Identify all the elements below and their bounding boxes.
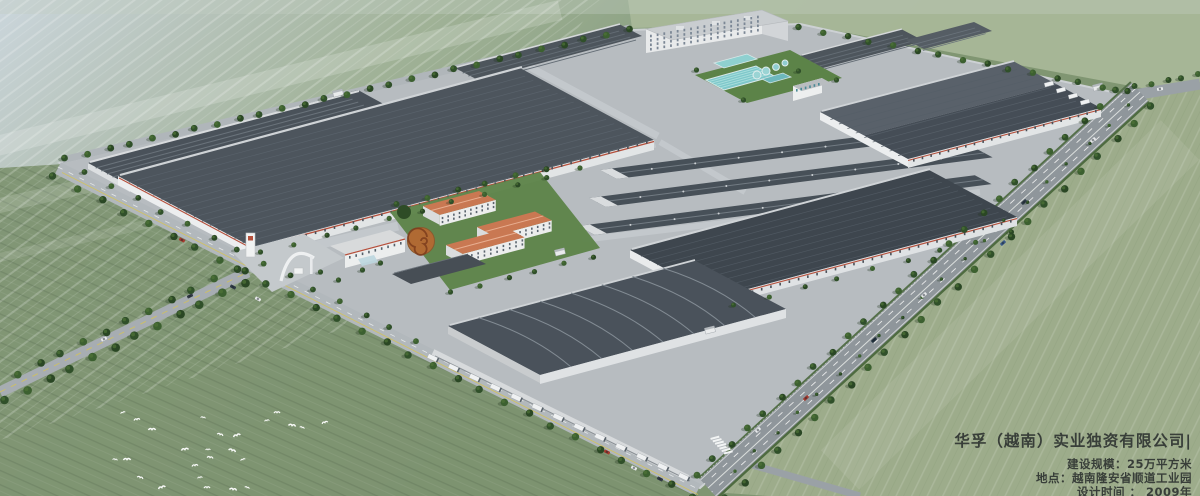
tree-highlight <box>508 276 510 278</box>
roof-vent <box>682 190 684 192</box>
tree-highlight <box>768 295 770 297</box>
tree-highlight <box>1113 87 1116 90</box>
dormitory-window <box>710 24 712 27</box>
tree-highlight <box>796 411 798 413</box>
tree-highlight <box>321 96 324 99</box>
dormitory-window <box>744 18 746 21</box>
tree-highlight <box>1127 104 1129 106</box>
tree-highlight <box>581 36 584 39</box>
tree-highlight <box>50 173 53 176</box>
tree-highlight <box>368 86 371 89</box>
dormitory-window <box>724 30 726 33</box>
tree-highlight <box>150 136 153 139</box>
wall-window <box>1069 117 1071 120</box>
bird <box>123 458 130 460</box>
dormitory-window <box>663 46 665 49</box>
wall-window <box>992 225 994 228</box>
dormitory-window <box>697 35 699 38</box>
tree-highlight <box>891 43 894 46</box>
tree-highlight <box>732 303 734 305</box>
tree-highlight <box>881 302 884 305</box>
tree-highlight <box>497 56 500 59</box>
tree-highlight <box>982 210 985 213</box>
tree-highlight <box>85 152 88 155</box>
large-tree <box>397 205 411 219</box>
tree-highlight <box>15 372 18 375</box>
tree-highlight <box>759 463 762 466</box>
roof-vent <box>824 146 826 148</box>
wall-window <box>913 159 915 162</box>
wall-window <box>372 216 374 219</box>
wall-window <box>1060 119 1062 122</box>
tree-highlight <box>544 167 547 170</box>
wall-window <box>899 250 901 253</box>
wall-window <box>964 233 966 236</box>
wall-window <box>375 249 377 252</box>
dormitory-window <box>717 32 719 35</box>
tree-highlight <box>830 350 833 353</box>
tree-highlight <box>1078 169 1081 172</box>
dormitory-window <box>717 23 719 26</box>
tree-highlight <box>961 58 964 61</box>
tree-highlight <box>797 69 799 71</box>
tree-highlight <box>259 250 261 252</box>
tree-highlight <box>1100 85 1103 88</box>
dormitory-window <box>710 33 712 36</box>
wall-window <box>814 84 816 87</box>
tree-highlight <box>379 261 381 263</box>
dormitory-window <box>657 47 659 50</box>
dormitory-window <box>744 27 746 30</box>
roof-vent <box>694 162 696 164</box>
tree-highlight <box>796 430 799 433</box>
tree-highlight <box>146 221 149 224</box>
tree-highlight <box>974 240 976 242</box>
tree-highlight <box>1062 186 1065 189</box>
tree-highlight <box>803 285 805 287</box>
dormitory-window <box>737 28 739 31</box>
dormitory-window <box>750 30 752 33</box>
tree-highlight <box>263 281 266 284</box>
tree-highlight <box>215 122 218 125</box>
wall-window <box>334 226 336 229</box>
tree-highlight <box>344 92 347 95</box>
wall-window <box>324 229 326 232</box>
design-time-line: 设计时间 ： 2009年 <box>954 486 1192 496</box>
dormitory-window <box>724 35 726 38</box>
wall-window <box>939 152 941 155</box>
wall-window <box>1086 112 1088 115</box>
location-line: 地点：越南隆安省顺道工业园 <box>954 472 1192 486</box>
wall-window <box>400 242 402 245</box>
tree-highlight <box>985 61 988 64</box>
dormitory-window <box>663 37 665 40</box>
dormitory-window <box>730 29 732 32</box>
wall-window <box>1000 136 1002 139</box>
dormitory-window <box>724 26 726 29</box>
dormitory-window <box>737 24 739 27</box>
tree-highlight <box>592 255 594 257</box>
tree-highlight <box>483 192 485 194</box>
tree-highlight <box>338 299 341 302</box>
wall-window <box>796 89 798 92</box>
tree-highlight <box>513 173 516 176</box>
tree-highlight <box>430 363 433 366</box>
wall-window <box>853 263 855 266</box>
wall-window <box>381 247 383 250</box>
tree-highlight <box>146 309 149 312</box>
tree-highlight <box>449 200 451 202</box>
tree-highlight <box>48 375 52 379</box>
dormitory-window <box>697 31 699 34</box>
wall-window <box>800 88 802 91</box>
tree-highlight <box>365 313 368 316</box>
wall-window <box>770 285 772 288</box>
wall-window <box>955 235 957 238</box>
dormitory-window <box>717 27 719 30</box>
tree-highlight <box>988 251 991 254</box>
wall-window <box>982 228 984 231</box>
tree-highlight <box>109 184 112 187</box>
tree-highlight <box>516 52 519 55</box>
dormitory-window <box>683 42 685 45</box>
dormitory-window <box>663 41 665 44</box>
tree-highlight <box>192 244 195 247</box>
tree-highlight <box>121 210 124 213</box>
roof-vent <box>811 174 813 176</box>
dormitory-window <box>730 34 732 37</box>
tree-highlight <box>548 423 551 426</box>
tree-highlight <box>82 170 85 173</box>
tree-highlight <box>936 52 939 55</box>
wall-window <box>945 238 947 241</box>
tree-highlight <box>1046 181 1048 183</box>
dormitory-window <box>690 36 692 39</box>
tree-highlight <box>1010 230 1012 232</box>
tree-highlight <box>173 132 176 135</box>
tree-highlight <box>482 181 485 184</box>
tree-highlight <box>1179 76 1182 79</box>
wall-window <box>890 253 892 256</box>
tree-highlight <box>644 471 647 474</box>
wall-window <box>355 254 357 257</box>
wall-window <box>779 283 781 286</box>
tree-highlight <box>280 106 283 109</box>
tree-highlight <box>80 339 83 342</box>
tree-highlight <box>1148 103 1151 106</box>
tree-highlight <box>502 400 505 403</box>
dormitory-window <box>670 44 672 47</box>
tree-highlight <box>562 43 565 46</box>
dormitory-window <box>670 36 672 39</box>
dormitory-window <box>750 21 752 24</box>
tree-highlight <box>112 344 116 348</box>
tree-highlight <box>242 280 246 284</box>
tree-highlight <box>334 315 337 318</box>
tree-highlight <box>1006 67 1009 70</box>
dormitory-window <box>750 26 752 29</box>
dormitory-window <box>724 22 726 25</box>
tree-highlight <box>409 76 412 79</box>
wall-window <box>1026 129 1028 132</box>
dormitory-window <box>704 25 706 28</box>
wall-window <box>872 258 874 261</box>
wall-window <box>991 138 993 141</box>
dormitory-window <box>650 48 652 51</box>
roof-vent <box>674 218 676 220</box>
company-title: 华孚（越南）实业独资有限公司| <box>954 429 1192 451</box>
tree-highlight <box>57 351 60 354</box>
tree-highlight <box>871 267 873 269</box>
tree-highlight <box>1094 153 1097 156</box>
tree-highlight <box>545 176 547 178</box>
dormitory-window <box>757 25 759 28</box>
tree-highlight <box>861 319 864 322</box>
dormitory-window <box>657 42 659 45</box>
wall-window <box>936 240 938 243</box>
tree-highlight <box>425 196 428 199</box>
tree-highlight <box>256 112 259 115</box>
tree-highlight <box>878 334 880 336</box>
tree-highlight <box>911 272 914 275</box>
roof-vent <box>897 163 899 165</box>
tree-highlight <box>811 364 814 367</box>
tree-highlight <box>695 68 697 70</box>
tree-highlight <box>935 299 938 302</box>
tree-highlight <box>1131 121 1134 124</box>
roof-vent <box>651 168 653 170</box>
tree-highlight <box>1041 201 1044 204</box>
tree-highlight <box>777 432 779 434</box>
wall-window <box>922 157 924 160</box>
tree-highlight <box>946 241 949 244</box>
construction-scale-line: 建设规模：25万平方米 <box>954 458 1192 472</box>
tree-highlight <box>907 259 909 261</box>
tree-highlight <box>730 442 733 445</box>
tree-highlight <box>627 26 630 29</box>
tree-highlight <box>319 270 321 272</box>
tree-highlight <box>359 328 362 331</box>
wall-window <box>835 268 837 271</box>
tree-highlight <box>474 62 477 65</box>
tree-highlight <box>1002 219 1004 221</box>
tree-highlight <box>1089 142 1091 144</box>
dormitory-window <box>697 26 699 29</box>
tree-highlight <box>1047 149 1050 152</box>
tree-highlight <box>1030 70 1033 73</box>
tree-highlight <box>154 323 158 327</box>
roof-vent <box>738 157 740 159</box>
tree-highlight <box>865 365 868 368</box>
tree-highlight <box>1055 76 1058 79</box>
tree-highlight <box>171 234 174 237</box>
tree-highlight <box>131 332 135 336</box>
tree-highlight <box>288 273 291 276</box>
wall-window <box>1052 122 1054 125</box>
tree-highlight <box>962 227 965 230</box>
wall-window <box>561 164 563 167</box>
wall-window <box>825 270 827 273</box>
dormitory-window <box>677 43 679 46</box>
wall-window <box>394 244 396 247</box>
wall-window <box>918 245 920 248</box>
tree-highlight <box>516 183 518 185</box>
tree-highlight <box>931 258 934 261</box>
tree-highlight <box>796 25 799 28</box>
tree-highlight <box>354 226 356 228</box>
tree-highlight <box>1166 78 1169 81</box>
wall-window <box>599 154 601 157</box>
tree-highlight <box>849 382 852 385</box>
tree-highlight <box>1063 135 1066 138</box>
wall-window <box>580 159 582 162</box>
tree-highlight <box>1065 163 1067 165</box>
sign-logo <box>248 236 253 241</box>
dormitory-window <box>730 20 732 23</box>
wall-window <box>761 288 763 291</box>
tree-highlight <box>89 354 93 358</box>
tree-highlight <box>619 458 622 461</box>
tree-highlight <box>432 72 435 75</box>
wall-window <box>1001 223 1003 226</box>
tree-highlight <box>361 268 363 270</box>
tree-highlight <box>1032 165 1035 168</box>
dormitory-window <box>730 25 732 28</box>
dormitory-window <box>717 36 719 39</box>
wall-window <box>381 213 383 216</box>
tree-highlight <box>386 82 389 85</box>
roof-vent <box>781 151 783 153</box>
tree-highlight <box>288 292 291 295</box>
dormitory-window <box>710 28 712 31</box>
tree-highlight <box>1 397 5 401</box>
dormitory-window <box>744 22 746 25</box>
tree-highlight <box>1025 219 1028 222</box>
tree-highlight <box>1098 104 1101 107</box>
tree-highlight <box>983 239 985 241</box>
tree-highlight <box>821 30 824 33</box>
dormitory-window <box>683 29 685 32</box>
tree-highlight <box>185 222 188 225</box>
tree-highlight <box>1115 136 1118 139</box>
dormitory-window <box>737 19 739 22</box>
tree-highlight <box>997 196 1000 199</box>
tree-highlight <box>839 373 841 375</box>
tree-highlight <box>235 266 238 269</box>
bird <box>274 412 280 413</box>
tree-highlight <box>478 284 480 286</box>
wall-window <box>816 273 818 276</box>
dormitory-window <box>657 34 659 37</box>
tree-highlight <box>325 233 327 235</box>
tree-highlight <box>694 473 697 476</box>
wall-window <box>982 140 984 143</box>
dormitory-window <box>704 34 706 37</box>
wall-window <box>1017 131 1019 134</box>
wall-window <box>844 265 846 268</box>
dormitory-window <box>683 33 685 36</box>
wall-window <box>315 231 317 234</box>
wall-window <box>909 248 911 251</box>
wall-window <box>362 253 364 256</box>
tree-highlight <box>337 278 339 280</box>
flower-garden-spiral <box>408 228 435 255</box>
tree-highlight <box>1196 72 1199 75</box>
bird <box>206 449 211 450</box>
tree-highlight <box>828 397 831 400</box>
wall-window <box>948 150 950 153</box>
tree-highlight <box>235 247 238 250</box>
wall-window <box>387 246 389 249</box>
wall-window <box>353 221 355 224</box>
roof-vent <box>639 196 641 198</box>
wall-window <box>1010 220 1012 223</box>
tree-highlight <box>62 155 65 158</box>
wall-window <box>809 85 811 88</box>
wall-window <box>627 146 629 149</box>
wall-window <box>1034 126 1036 129</box>
tree-highlight <box>780 395 783 398</box>
tree-highlight <box>38 360 41 363</box>
dormitory-window <box>677 34 679 37</box>
tree-highlight <box>669 481 672 484</box>
tree-highlight <box>177 311 181 315</box>
wall-window <box>349 256 351 259</box>
dormitory-window <box>737 32 739 35</box>
tree-highlight <box>262 261 265 264</box>
tree-highlight <box>866 40 869 43</box>
tree-highlight <box>734 470 736 472</box>
roof-vent <box>762 207 764 209</box>
bird <box>204 487 210 488</box>
tree-highlight <box>533 270 535 272</box>
tree-highlight <box>742 480 745 483</box>
tree-highlight <box>1108 124 1110 126</box>
dormitory-window <box>710 37 712 40</box>
dormitory-window <box>657 38 659 41</box>
tree-highlight <box>456 187 459 190</box>
tree-highlight <box>212 236 215 239</box>
tree-highlight <box>1082 118 1085 121</box>
wall-window <box>1095 110 1097 113</box>
tree-highlight <box>598 447 601 450</box>
tree-highlight <box>66 366 70 370</box>
roof-vent <box>768 179 770 181</box>
wall-window <box>551 167 553 170</box>
tree-highlight <box>846 34 849 37</box>
tree-highlight <box>414 339 417 342</box>
tree-highlight <box>1125 89 1128 92</box>
bird <box>148 428 155 430</box>
tree-highlight <box>313 305 316 308</box>
tree-highlight <box>795 380 798 383</box>
tree-highlight <box>1132 84 1135 87</box>
wall-window <box>974 143 976 146</box>
wall-window <box>956 147 958 150</box>
tree-highlight <box>394 202 397 205</box>
wall-window <box>362 219 364 222</box>
tree-highlight <box>188 287 191 290</box>
tree-highlight <box>421 209 423 211</box>
tree-highlight <box>881 349 884 352</box>
wall-window <box>927 243 929 246</box>
tree-highlight <box>311 287 314 290</box>
wall-window <box>1008 133 1010 136</box>
tree-highlight <box>303 102 306 105</box>
tree-highlight <box>745 425 748 428</box>
tree-highlight <box>972 267 975 270</box>
tree-highlight <box>211 276 214 279</box>
